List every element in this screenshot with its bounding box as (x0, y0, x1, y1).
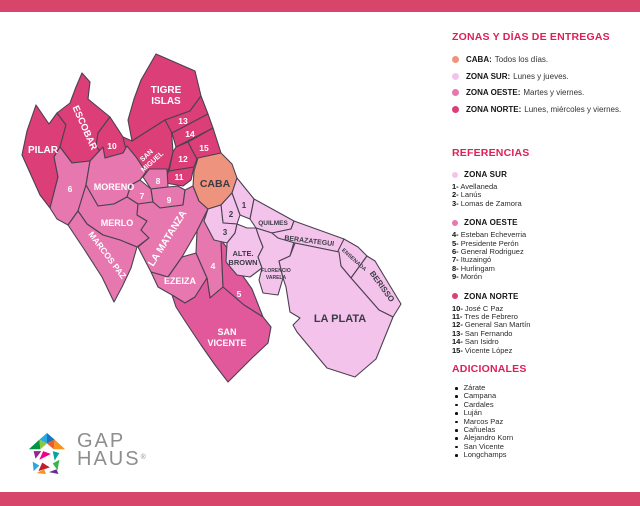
gap-haus-wordmark: GAP HAUS® (77, 433, 146, 467)
ref-group-header: ZONA OESTE (452, 218, 637, 227)
map-label-ezeiza: EZEIZA (164, 276, 197, 286)
registered-mark-icon: ® (141, 454, 146, 461)
map-label-zone-4: 4 (211, 261, 216, 271)
legend-row-oeste: ZONA OESTE:Martes y viernes. (452, 86, 621, 99)
ref-group-items: 4- Esteban Echeverria5- Presidente Perón… (452, 231, 637, 281)
ref-group-header: ZONA SUR (452, 170, 637, 179)
gap-haus-house-icon (26, 430, 68, 478)
ref-group-items: 1- Avellaneda2- Lanús3- Lomas de Zamora (452, 183, 637, 208)
bullet-dot-icon (455, 395, 458, 398)
ref-group-norte: ZONA NORTE10- José C Paz11- Tres de Febr… (452, 292, 637, 355)
ref-group-oeste: ZONA OESTE4- Esteban Echeverria5- Presid… (452, 218, 637, 281)
bullet-dot-icon (455, 446, 458, 449)
map-label-zone-13: 13 (178, 116, 188, 126)
map-label-zone-3: 3 (223, 228, 228, 237)
zone-label: ZONA NORTE: (466, 105, 521, 114)
zone-days: Todos los días. (495, 55, 548, 64)
adicionales-title: ADICIONALES (452, 363, 527, 375)
zone-days: Martes y viernes. (523, 88, 584, 97)
bottom-accent-bar (0, 492, 640, 506)
zone-name: ZONA NORTE (464, 292, 519, 301)
map-label-zone-5: 5 (237, 289, 242, 299)
bullet-dot-icon (455, 421, 458, 424)
delivery-days-legend: CABA:Todos los días.ZONA SUR:Lunes y jue… (452, 53, 621, 119)
bullet-dot-icon (455, 412, 458, 415)
map-label-merlo: MERLO (101, 218, 134, 228)
referencias-groups: ZONA SUR1- Avellaneda2- Lanús3- Lomas de… (452, 170, 637, 365)
map-label-zone-6: 6 (68, 184, 73, 194)
legend-row-sur: ZONA SUR:Lunes y jueves. (452, 70, 621, 83)
legend-row-caba: CABA:Todos los días. (452, 53, 621, 66)
zones-map-svg: PILARESCOBARTIGREISLAS10SANMIGUEL1314151… (10, 25, 440, 395)
delivery-zones-infographic: PILARESCOBARTIGREISLAS10SANMIGUEL1314151… (0, 0, 640, 506)
zone-label: ZONA OESTE: (466, 88, 520, 97)
map-label-zone-11: 11 (175, 172, 184, 182)
bullet-dot-icon (455, 454, 458, 457)
zone-color-dot (452, 89, 459, 96)
map-label-zone-14: 14 (185, 129, 195, 139)
map-label-caba: CABA (200, 178, 231, 190)
map-label-zone-8: 8 (156, 176, 161, 186)
zone-days: Lunes y jueves. (513, 72, 569, 81)
zone-color-dot (452, 172, 458, 178)
ref-item: 15- Vicente López (452, 347, 637, 355)
logo-line2: HAUS (77, 448, 141, 470)
map-label-zone-2: 2 (229, 210, 234, 219)
delivery-days-title: ZONAS Y DÍAS DE ENTREGAS (452, 31, 610, 43)
ref-group-sur: ZONA SUR1- Avellaneda2- Lanús3- Lomas de… (452, 170, 637, 208)
map-label-tigre-islas: TIGREISLAS (151, 85, 182, 107)
bullet-dot-icon (455, 429, 458, 432)
map-label-la-plata: LA PLATA (314, 313, 366, 325)
zone-name: ZONA SUR (464, 170, 507, 179)
ref-group-header: ZONA NORTE (452, 292, 637, 301)
zone-label: CABA: (466, 55, 492, 64)
ref-item: 3- Lomas de Zamora (452, 200, 637, 208)
map-label-pilar: PILAR (28, 145, 59, 156)
map-label-alte-brown: ALTE.BROWN (228, 249, 257, 267)
zone-color-dot (452, 293, 458, 299)
adicionales-list: ZárateCampanaCardalesLujánMarcos PazCañu… (455, 384, 513, 460)
bullet-dot-icon (455, 437, 458, 440)
zone-color-dot (452, 73, 459, 80)
map-label-zone-12: 12 (178, 154, 188, 164)
map-label-zone-15: 15 (199, 143, 209, 153)
bullet-dot-icon (455, 387, 458, 390)
adicional-item: Longchamps (455, 451, 513, 459)
zone-color-dot (452, 106, 459, 113)
referencias-title: REFERENCIAS (452, 147, 529, 159)
legend-row-norte: ZONA NORTE:Lunes, miércoles y viernes. (452, 103, 621, 116)
zone-name: ZONA OESTE (464, 218, 518, 227)
zone-color-dot (452, 220, 458, 226)
zones-map: PILARESCOBARTIGREISLAS10SANMIGUEL1314151… (10, 25, 440, 395)
ref-item: 9- Morón (452, 273, 637, 281)
gap-haus-logo: GAP HAUS® (26, 430, 146, 478)
map-label-zone-1: 1 (242, 201, 247, 210)
ref-group-items: 10- José C Paz11- Tres de Febrero12- Gen… (452, 305, 637, 355)
zone-color-dot (452, 56, 459, 63)
map-label-zone-7: 7 (140, 191, 145, 201)
map-label-zone-10: 10 (107, 141, 117, 151)
top-accent-bar (0, 0, 640, 12)
map-label-moreno: MORENO (94, 182, 135, 192)
zone-days: Lunes, miércoles y viernes. (524, 105, 621, 114)
map-label-zone-9: 9 (167, 195, 172, 205)
map-label-quilmes: QUILMES (258, 220, 288, 227)
bullet-dot-icon (455, 404, 458, 407)
zone-label: ZONA SUR: (466, 72, 510, 81)
